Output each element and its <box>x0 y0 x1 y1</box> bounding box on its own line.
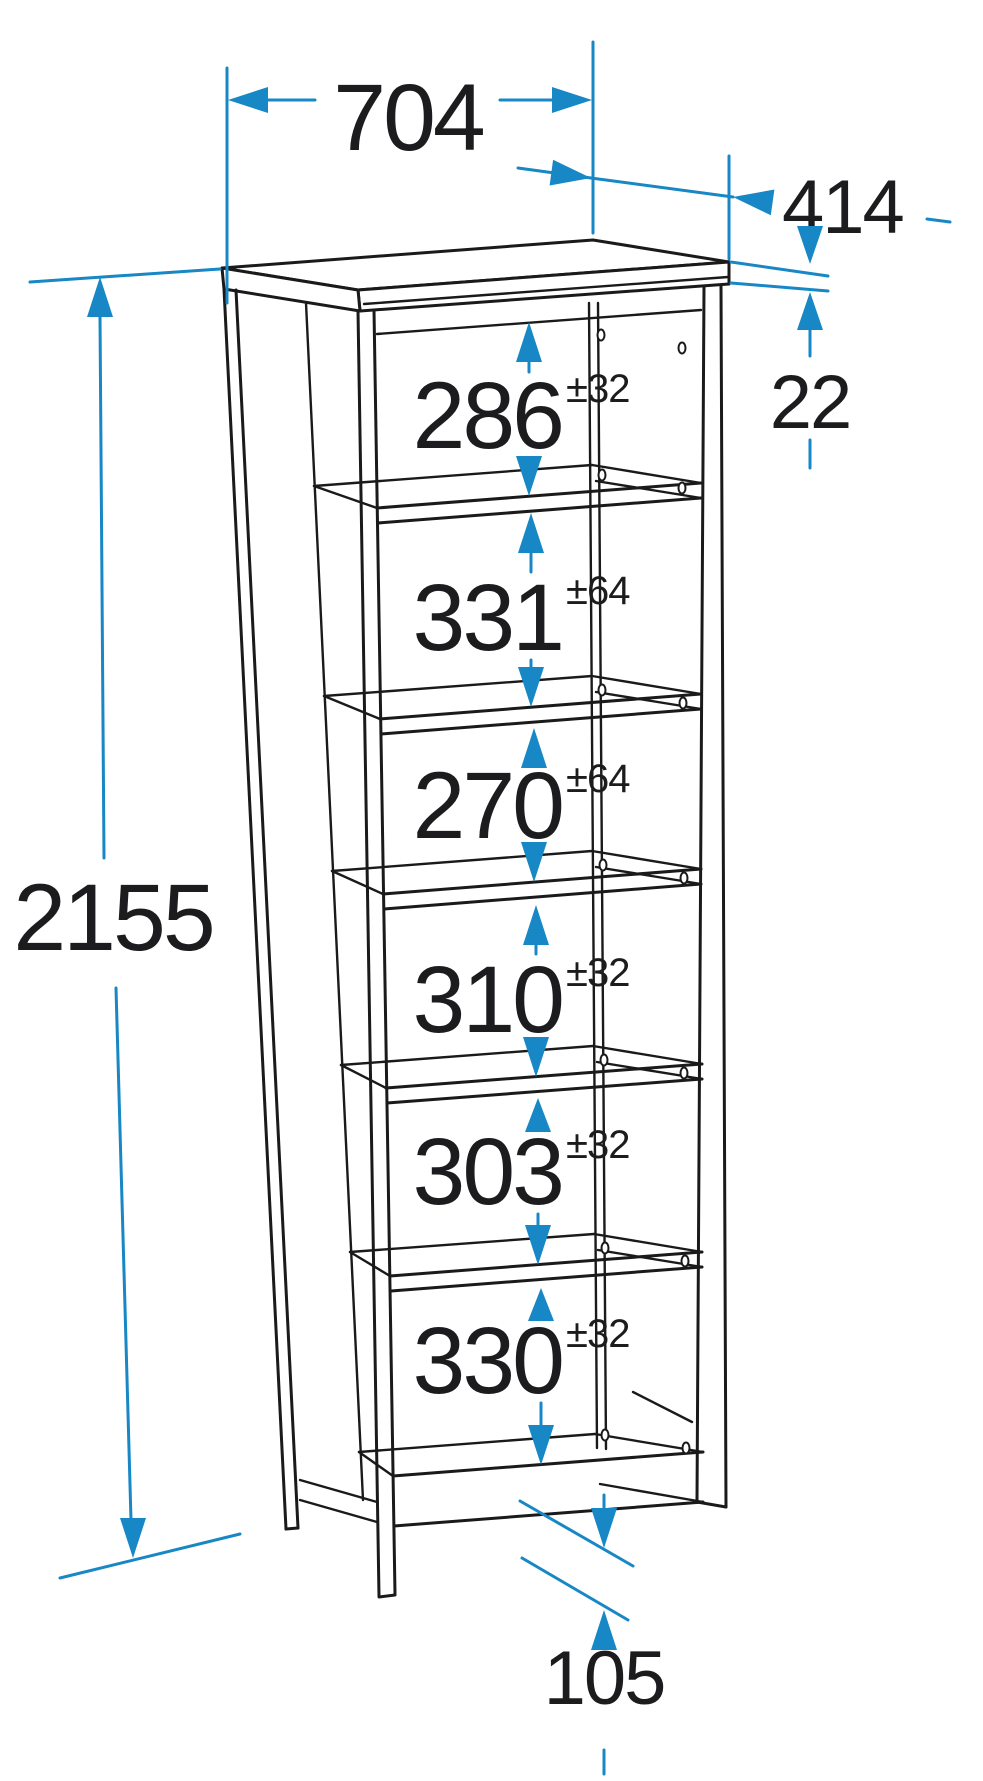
top-thickness-value: 22 <box>770 360 851 445</box>
shelf-spacing-2-value: 331 <box>412 565 562 671</box>
shelf-spacing-1-tolerance: ±32 <box>566 367 629 411</box>
diagram-canvas: 704 414 22 2155 105 <box>0 0 983 1781</box>
top-panel <box>222 240 729 311</box>
depth-value: 414 <box>782 165 904 250</box>
height-value: 2155 <box>13 865 212 971</box>
shelf-3 <box>332 851 701 909</box>
dimension-height: 2155 <box>13 269 240 1578</box>
shelf-spacing-6-value: 330 <box>412 1308 562 1414</box>
shelf-1 <box>314 465 701 523</box>
shelf-spacing-4-value: 310 <box>412 947 562 1053</box>
dimension-shelf-3: 270 ±64 <box>412 728 630 882</box>
dimension-diagram: 704 414 22 2155 105 <box>0 0 983 1781</box>
dimension-plinth: 105 <box>520 1495 664 1774</box>
shelf-spacing-6-tolerance: ±32 <box>566 1312 629 1356</box>
left-side-panel <box>224 289 395 1597</box>
shelf-spacing-2-tolerance: ±64 <box>566 569 630 613</box>
shelf-5 <box>350 1234 702 1291</box>
dimension-shelf-1: 286 ±32 <box>412 322 629 496</box>
shelf-spacing-4-tolerance: ±32 <box>566 951 629 995</box>
shelf-4 <box>341 1046 702 1103</box>
plinth-value: 105 <box>544 1636 665 1721</box>
dimension-shelf-4: 310 ±32 <box>412 905 629 1077</box>
shelf-spacing-5-value: 303 <box>412 1119 562 1225</box>
shelf-spacing-1-value: 286 <box>412 363 562 469</box>
dimension-top-thickness: 22 <box>731 226 850 468</box>
shelf-spacing-3-tolerance: ±64 <box>566 757 630 801</box>
shelf-spacing-5-tolerance: ±32 <box>566 1123 629 1167</box>
shelf-spacing-3-value: 270 <box>412 753 562 859</box>
bottom-shelf <box>359 1434 703 1526</box>
width-value: 704 <box>333 65 484 171</box>
